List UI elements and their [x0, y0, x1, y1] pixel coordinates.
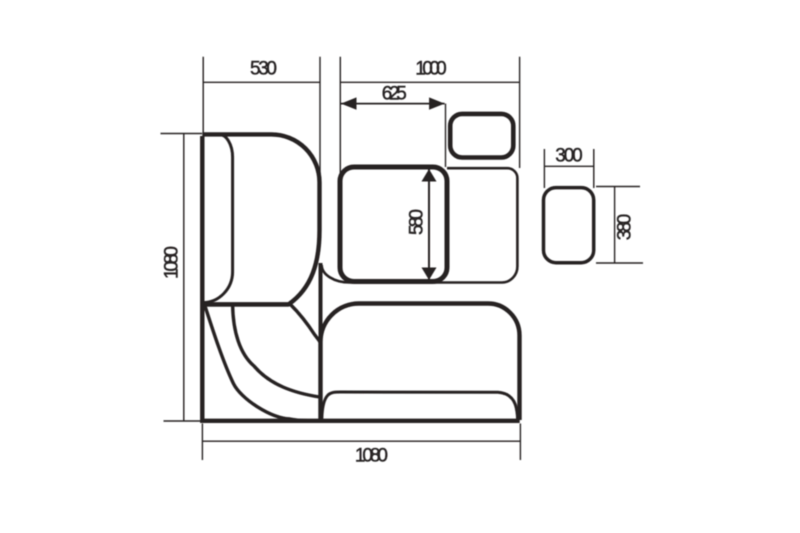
svg-text:530: 530 [250, 58, 277, 79]
svg-text:1080: 1080 [162, 246, 183, 279]
svg-text:580: 580 [407, 209, 428, 235]
svg-text:1000: 1000 [415, 58, 447, 79]
svg-text:300: 300 [555, 145, 583, 166]
svg-text:625: 625 [382, 83, 407, 104]
svg-text:1080: 1080 [355, 445, 388, 466]
svg-text:380: 380 [615, 214, 636, 241]
